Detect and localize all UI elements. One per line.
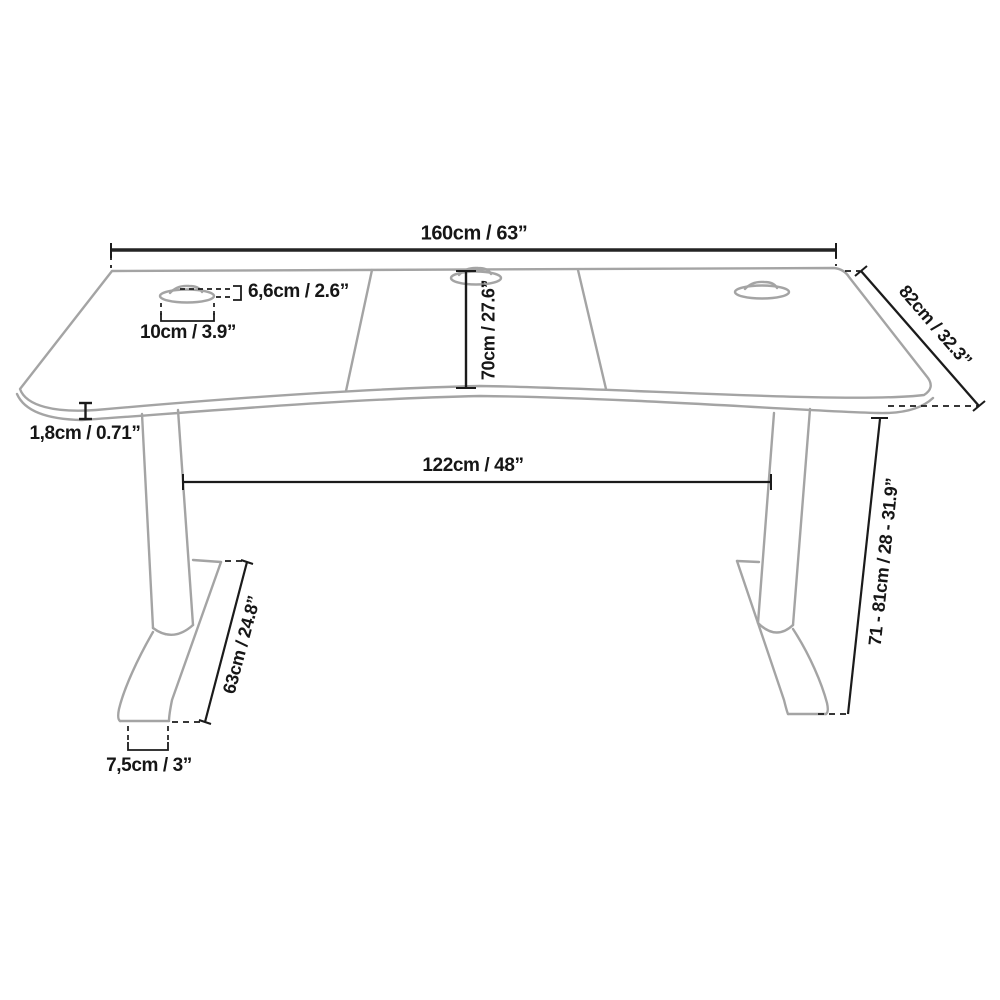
desk-leg-left bbox=[118, 410, 221, 721]
label-desktop-width: 160cm / 63” bbox=[421, 223, 528, 246]
desk-top-surface bbox=[17, 268, 933, 420]
grommet-left-icon bbox=[160, 286, 214, 303]
grommet-right-icon bbox=[735, 282, 789, 299]
label-leg-distance: 122cm / 48” bbox=[422, 455, 523, 477]
label-desktop-thickness: 1,8cm / 0.71” bbox=[30, 423, 141, 445]
dim-center-depth bbox=[456, 271, 476, 388]
dim-grommet-width bbox=[161, 303, 214, 321]
label-foot-width: 7,5cm / 3” bbox=[106, 755, 192, 777]
panel-seam-left bbox=[346, 270, 372, 391]
desk-drawing bbox=[0, 0, 1000, 1000]
desk-leg-right bbox=[737, 409, 828, 714]
label-grommet-height: 6,6cm / 2.6” bbox=[248, 281, 349, 303]
panel-seam-right bbox=[578, 270, 606, 389]
label-grommet-width: 10cm / 3.9” bbox=[140, 322, 236, 344]
diagram-canvas: 160cm / 63” 82cm / 32.3” 6,6cm / 2.6” 10… bbox=[0, 0, 1000, 1000]
dim-desktop-width bbox=[111, 243, 836, 268]
label-center-depth: 70cm / 27.6” bbox=[479, 280, 500, 380]
dim-foot-width bbox=[128, 726, 168, 750]
